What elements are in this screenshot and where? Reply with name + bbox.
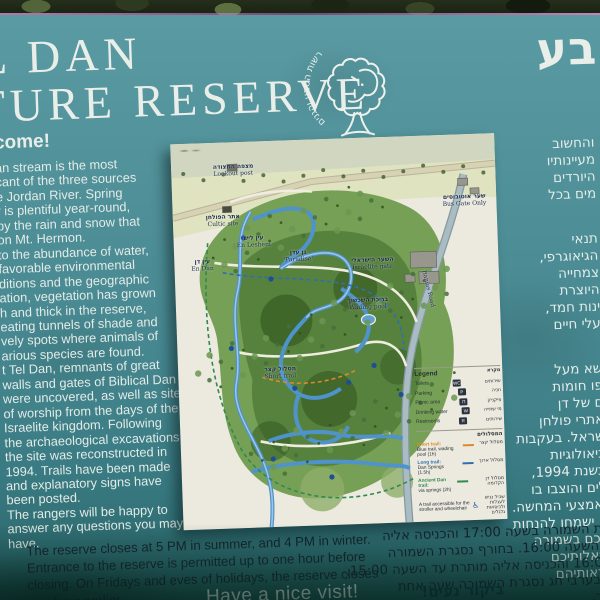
lookout-post-label-en: Lookout post (213, 170, 254, 178)
sign-content: L DAN TURE RESERVE בע רשות הטבע והגנים c… (0, 5, 600, 600)
legend-facility-he: מי שתייה (484, 407, 502, 413)
legend-facility-row: Drinking waterWמי שתייה (416, 406, 502, 416)
legend-trail-he: מסלול ארוך (479, 458, 504, 474)
legend-trail-he: מסלול דן הקדומה (470, 476, 505, 492)
legend-trails-title: המסלולים (416, 428, 502, 440)
legend-facility-row: Picnic areaΠפיקניק (415, 397, 501, 407)
legend-trail-desc: via springs (2h) (418, 488, 455, 494)
legend-facility-row: RestroomsRשירותים (416, 416, 502, 426)
legend-trail-text: Short trail:Blue trail, wading pool (1h) (417, 442, 457, 458)
short-trail-label: מסלול קצרShort trail (264, 366, 296, 381)
israelite-gate-label: השער הישראליIsraelite gate (351, 257, 394, 272)
short-trail-label-en: Short trail (264, 373, 296, 381)
logo-ibex-eye (361, 83, 364, 86)
lookout-post-label: מצפה המצודהLookout post (213, 164, 254, 179)
trail-dash-icon (463, 462, 474, 474)
cultic-site-label-en: Cultic site (206, 221, 240, 229)
trail-dash-icon (463, 444, 474, 456)
en-leshem-label: עין לישEn Leshem (237, 235, 271, 250)
legend-trails: Short trail:Blue trail, wading pool (1h)… (417, 440, 505, 494)
sign-board: L DAN TURE RESERVE בע רשות הטבע והגנים c… (0, 15, 600, 600)
sign-photo: L DAN TURE RESERVE בע רשות הטבע והגנים c… (0, 0, 600, 600)
israelite-gate-label-en: Israelite gate (351, 264, 393, 272)
legend-accessible-en: A trail accessible for the stroller and … (419, 501, 471, 513)
paradise-label-en: 'Paradise' (283, 256, 313, 264)
legend-trail-text: Long trail:Dan Springs (1.5h) (417, 460, 457, 476)
picnic-icon: Π (460, 398, 468, 405)
en-leshem-label-en: En Leshem (237, 242, 271, 250)
legend-facility-he: פיקניק (487, 398, 501, 403)
legend-facility-he: שירותים (485, 379, 501, 385)
legend-facility-row: ParkingPחניה (415, 387, 501, 397)
legend-facility-he: שירותים (486, 417, 502, 423)
bus-gate-label: שער אוטובוסיםBus Gate Only (442, 193, 486, 208)
en-dan-label: עין דןEn Dan (191, 259, 214, 274)
legend-facilities: ToiletsWCשירותיםParkingPחניהPicnic areaΠ… (415, 378, 503, 426)
legend-trail-row: Ancient Dan trail:via springs (2h)מסלול … (418, 476, 504, 494)
logo-ibex-face (348, 77, 365, 102)
legend-title-he: מקרא (487, 368, 501, 375)
wheelchair-icon: ♿ (472, 501, 479, 510)
legend-facility-en: Toilets (415, 381, 429, 387)
cultic-site-label: אתר הפולחןCultic site (206, 214, 241, 229)
welcome-heading: come! (0, 131, 50, 155)
title-hebrew-fragment: בע (535, 20, 598, 76)
logo-arc-text: רשות הטבע והגנים (300, 49, 328, 129)
legend-facility-en: Restrooms (416, 419, 440, 426)
legend-trail-he: מסלול קצר (479, 440, 503, 456)
map-legend: Legend מקרא ToiletsWCשירותיםParkingPחניה… (414, 365, 506, 530)
legend-facility-row: ToiletsWCשירותים (415, 378, 501, 388)
legend-accessible-he: שביל נגיש לעגלות ולכיסאות גלגלים (481, 495, 505, 516)
legend-trail-row: Short trail:Blue trail, wading pool (1h)… (417, 440, 503, 458)
legend-trail-row: Long trail:Dan Springs (1.5h)מסלול ארוך (417, 458, 503, 476)
legend-facility-en: Drinking water (416, 409, 448, 416)
trail-map: מצפה המצודהLookout postאתר הפולחןCultic … (170, 133, 507, 530)
wading-pool-label: בריכת השכשוךWading pool (347, 297, 388, 312)
logo-ibex-horn (360, 69, 378, 95)
drinking-water-icon: W (462, 408, 470, 415)
legend-facility-he: חניה (492, 388, 501, 393)
trail-dash-icon (457, 480, 468, 492)
nature-parks-authority-logo: רשות הטבע והגנים (288, 25, 424, 146)
legend-trail-desc: Dan Springs (1.5h) (418, 465, 458, 476)
restrooms-icon: R (459, 417, 467, 424)
legend-facility-en: Picnic area (415, 399, 440, 406)
wading-pool-label-en: Wading pool (348, 304, 389, 312)
logo-trunk-legs (341, 112, 374, 135)
legend-trail-text: Ancient Dan trail:via springs (2h) (418, 478, 455, 494)
paradise-label: גן עדן'Paradise' (283, 250, 313, 265)
toilets-icon: WC (453, 379, 461, 386)
legend-facility-en: Parking (415, 390, 432, 397)
legend-trail-desc: Blue trail, wading pool (1h) (417, 447, 457, 458)
parking-icon: P (458, 388, 466, 395)
legend-title-en: Legend (414, 370, 437, 378)
farewell-hebrew: ביקור נעים! (421, 580, 504, 600)
en-dan-label-en: En Dan (191, 266, 214, 274)
